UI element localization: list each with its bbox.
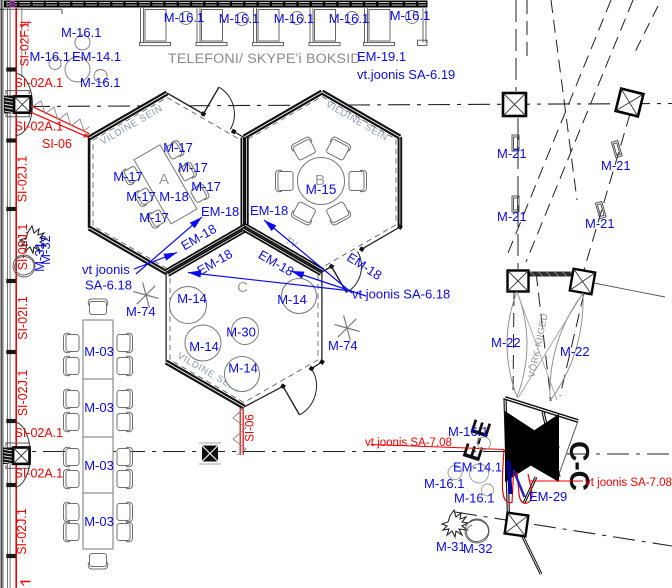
svg-text:SI-02J.1: SI-02J.1 bbox=[15, 508, 29, 555]
svg-text:M-16.1: M-16.1 bbox=[274, 11, 314, 26]
svg-text:M-14: M-14 bbox=[277, 292, 307, 307]
svg-text:M-16.1: M-16.1 bbox=[61, 25, 101, 40]
svg-text:SI-02F.1: SI-02F.1 bbox=[18, 21, 32, 66]
svg-text:M-74: M-74 bbox=[126, 304, 156, 319]
svg-text:vt joonis SA-7.08: vt joonis SA-7.08 bbox=[365, 437, 452, 449]
svg-text:M-21: M-21 bbox=[497, 146, 527, 161]
svg-text:EM-14.1: EM-14.1 bbox=[453, 460, 502, 475]
svg-text:M-03: M-03 bbox=[84, 514, 114, 529]
svg-text:M-16.1: M-16.1 bbox=[454, 491, 494, 506]
svg-text:SI-06: SI-06 bbox=[42, 137, 72, 151]
svg-text:SA-6.18: SA-6.18 bbox=[85, 278, 132, 293]
svg-text:M-18: M-18 bbox=[159, 189, 189, 204]
svg-text:M-17: M-17 bbox=[126, 189, 156, 204]
svg-text:M-31: M-31 bbox=[32, 242, 47, 272]
svg-text:M-17: M-17 bbox=[163, 140, 193, 155]
svg-text:vt joonis SA-6.18: vt joonis SA-6.18 bbox=[352, 287, 450, 302]
svg-text:M-14: M-14 bbox=[177, 291, 207, 306]
svg-text:SI-02I.1: SI-02I.1 bbox=[16, 296, 30, 340]
svg-text:M-16.1: M-16.1 bbox=[424, 476, 464, 491]
svg-text:M-03: M-03 bbox=[84, 400, 114, 415]
svg-text:SI-02A.1: SI-02A.1 bbox=[15, 426, 64, 440]
svg-text:vt joonis: vt joonis bbox=[82, 262, 130, 277]
svg-text:M-16.1: M-16.1 bbox=[80, 75, 120, 90]
svg-text:M-17: M-17 bbox=[139, 210, 169, 225]
svg-text:M-14: M-14 bbox=[189, 339, 219, 354]
svg-text:M-17: M-17 bbox=[178, 160, 208, 175]
svg-text:A: A bbox=[159, 171, 169, 188]
svg-text:SI-02A.1: SI-02A.1 bbox=[15, 120, 64, 134]
svg-text:EM-18: EM-18 bbox=[201, 204, 239, 219]
svg-text:M-15: M-15 bbox=[306, 182, 337, 197]
svg-text:M-22: M-22 bbox=[491, 335, 521, 350]
svg-text:SI-02J.1: SI-02J.1 bbox=[16, 224, 30, 271]
svg-text:M-74: M-74 bbox=[328, 338, 358, 353]
svg-text:vt joonis SA-7.08: vt joonis SA-7.08 bbox=[585, 477, 672, 489]
svg-text:M-21: M-21 bbox=[585, 216, 615, 231]
svg-text:vt.joonis SA-6.19: vt.joonis SA-6.19 bbox=[357, 67, 455, 82]
svg-text:EM-29: EM-29 bbox=[529, 489, 567, 504]
svg-text:M-21: M-21 bbox=[497, 209, 527, 224]
svg-text:M-17: M-17 bbox=[191, 179, 221, 194]
svg-text:EM-19.1: EM-19.1 bbox=[357, 49, 406, 64]
svg-text:M-03: M-03 bbox=[84, 344, 114, 359]
svg-text:C: C bbox=[237, 279, 248, 296]
svg-text:TELEFONI/ SKYPE'i BOKSID: TELEFONI/ SKYPE'i BOKSID bbox=[168, 51, 361, 67]
svg-text:M-16.1: M-16.1 bbox=[390, 8, 430, 23]
svg-text:SI-02J.1: SI-02J.1 bbox=[16, 370, 30, 417]
svg-text:SI-02A.1: SI-02A.1 bbox=[15, 467, 64, 481]
svg-text:EM-14.1: EM-14.1 bbox=[72, 49, 121, 64]
svg-text:SI-06: SI-06 bbox=[245, 414, 257, 442]
svg-text:M-16.1: M-16.1 bbox=[219, 11, 259, 26]
svg-text:M-16.1: M-16.1 bbox=[30, 49, 70, 64]
svg-text:M-17: M-17 bbox=[113, 169, 143, 184]
svg-text:EM-18: EM-18 bbox=[250, 203, 288, 218]
svg-text:M-16.1: M-16.1 bbox=[448, 424, 488, 439]
svg-text:M-30: M-30 bbox=[226, 325, 256, 340]
svg-text:M-32: M-32 bbox=[463, 541, 493, 556]
svg-text:M-16.1: M-16.1 bbox=[329, 11, 369, 26]
svg-text:M-21: M-21 bbox=[601, 158, 631, 173]
svg-text:M-31: M-31 bbox=[436, 539, 466, 554]
svg-text:M-14: M-14 bbox=[228, 361, 258, 376]
svg-text:M-03: M-03 bbox=[84, 458, 114, 473]
svg-text:M-22: M-22 bbox=[560, 344, 590, 359]
svg-text:M-16.1: M-16.1 bbox=[164, 10, 204, 25]
svg-text:SI-02A.1: SI-02A.1 bbox=[15, 76, 64, 90]
svg-text:SI-02J.1: SI-02J.1 bbox=[16, 156, 30, 203]
